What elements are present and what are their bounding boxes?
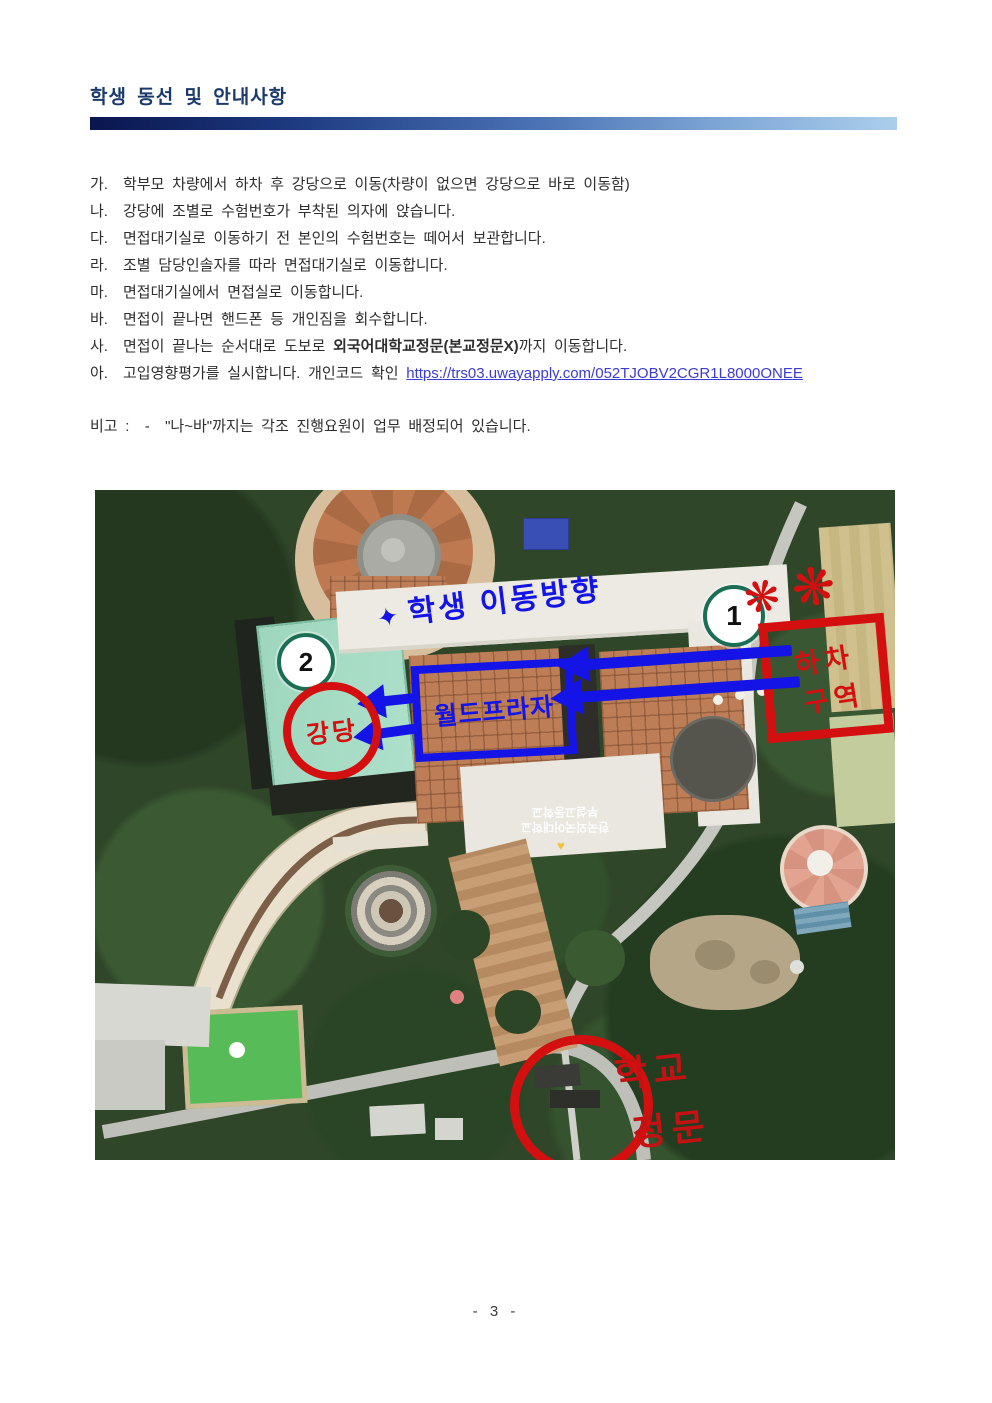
item-text: 면접대기실에서 면접실로 이동합니다. <box>123 279 850 306</box>
list-item: 다.면접대기실로 이동하기 전 본인의 수험번호는 떼어서 보관합니다. <box>90 225 850 252</box>
item-text-normal: 고입영향평가를 실시합니다. 개인코드 확인 <box>123 365 406 382</box>
item-text-bold: 외국어대학교정문(본교정문X) <box>333 338 519 355</box>
list-item: 마.면접대기실에서 면접실로 이동합니다. <box>90 279 850 306</box>
item-text: 고입영향평가를 실시합니다. 개인코드 확인 https://trs03.uwa… <box>123 360 850 387</box>
pink-tree <box>450 990 464 1004</box>
item-text: 조별 담당인솔자를 따라 면접대기실로 이동합니다. <box>123 252 850 279</box>
plaza-center <box>381 538 405 562</box>
dark-circular-plaza <box>670 716 756 802</box>
item-text: 학부모 차량에서 하차 후 강당으로 이동(차량이 없으면 강당으로 바로 이동… <box>123 171 850 198</box>
instruction-list: 가.학부모 차량에서 하차 후 강당으로 이동(차량이 없으면 강당으로 바로 … <box>90 171 850 440</box>
rooftop-sign-line1: 한국외국어대학교 <box>480 819 650 834</box>
garden-bush <box>495 990 541 1034</box>
personal-code-link[interactable]: https://trs03.uwayapply.com/052TJOBV2CGR… <box>406 365 803 382</box>
list-item: 나.강당에 조별로 수험번호가 부착된 의자에 앉습니다. <box>90 198 850 225</box>
list-item: 아. 고입영향평가를 실시합니다. 개인코드 확인 https://trs03.… <box>90 360 850 387</box>
rooftop-sign-line2: 부설고등학교 <box>480 804 650 819</box>
small-shed <box>435 1118 463 1140</box>
white-dot-feature <box>790 960 804 974</box>
list-item: 가.학부모 차량에서 하차 후 강당으로 이동(차량이 없으면 강당으로 바로 … <box>90 171 850 198</box>
world-plaza-box: 월드프라자 <box>411 658 578 762</box>
item-text-normal: 까지 이동합니다. <box>519 338 627 355</box>
list-item: 사. 면접이 끝나는 순서대로 도보로 외국어대학교정문(본교정문X)까지 이동… <box>90 333 850 360</box>
world-plaza-label: 월드프라자 <box>433 687 556 733</box>
item-label: 가. <box>90 171 123 198</box>
court-center-circle <box>229 1042 245 1058</box>
page-number: - 3 - <box>0 1303 992 1320</box>
school-gate-label: 학교 정문 <box>611 1034 742 1158</box>
item-label: 다. <box>90 225 123 252</box>
rooftop-sign: 한국외국어대학교 부설고등학교 <box>480 790 650 834</box>
item-text: 면접이 끝나는 순서대로 도보로 외국어대학교정문(본교정문X)까지 이동합니다… <box>123 333 850 360</box>
item-text: 면접이 끝나면 핸드폰 등 개인짐을 회수합니다. <box>123 306 850 333</box>
item-label: 사. <box>90 333 123 360</box>
page-title: 학생 동선 및 안내사항 <box>90 82 287 109</box>
clearing-mound <box>695 940 735 970</box>
auditorium-circle: 강당 <box>283 682 381 780</box>
item-label: 아. <box>90 360 123 387</box>
campus-aerial-map: ✦ 학생 이동방향 1 ❋ ❋ 하차 구역 월드프라자 2 강당 한국외국어대학… <box>95 490 895 1160</box>
note-line: 비고 : - "나~바"까지는 각조 진행요원이 업무 배정되어 있습니다. <box>90 413 850 440</box>
item-label: 라. <box>90 252 123 279</box>
dropoff-label-line2: 구역 <box>801 673 866 721</box>
item-text-normal: 면접이 끝나는 순서대로 도보로 <box>123 338 333 355</box>
item-label: 바. <box>90 306 123 333</box>
garden-bush <box>440 910 490 960</box>
list-item: 바.면접이 끝나면 핸드폰 등 개인짐을 회수합니다. <box>90 306 850 333</box>
list-item: 라.조별 담당인솔자를 따라 면접대기실로 이동합니다. <box>90 252 850 279</box>
clearing-mound <box>750 960 780 984</box>
spiral-garden <box>345 865 437 957</box>
item-text: 강당에 조별로 수험번호가 부착된 의자에 앉습니다. <box>123 198 850 225</box>
southwest-building-2 <box>95 1040 165 1110</box>
title-gradient-bar <box>90 117 897 130</box>
item-label: 마. <box>90 279 123 306</box>
school-gate-line1: 학교 <box>611 1034 736 1098</box>
garden-bush <box>565 930 625 986</box>
pavilion-dome <box>807 850 833 876</box>
southwest-building <box>95 983 211 1047</box>
auditorium-label: 강당 <box>304 710 359 751</box>
item-label: 나. <box>90 198 123 225</box>
item-text: 면접대기실로 이동하기 전 본인의 수험번호는 떼어서 보관합니다. <box>123 225 850 252</box>
blue-tarp <box>523 518 569 550</box>
rooftop-heart-icon: ♥ <box>557 838 565 853</box>
small-shed <box>369 1104 425 1137</box>
